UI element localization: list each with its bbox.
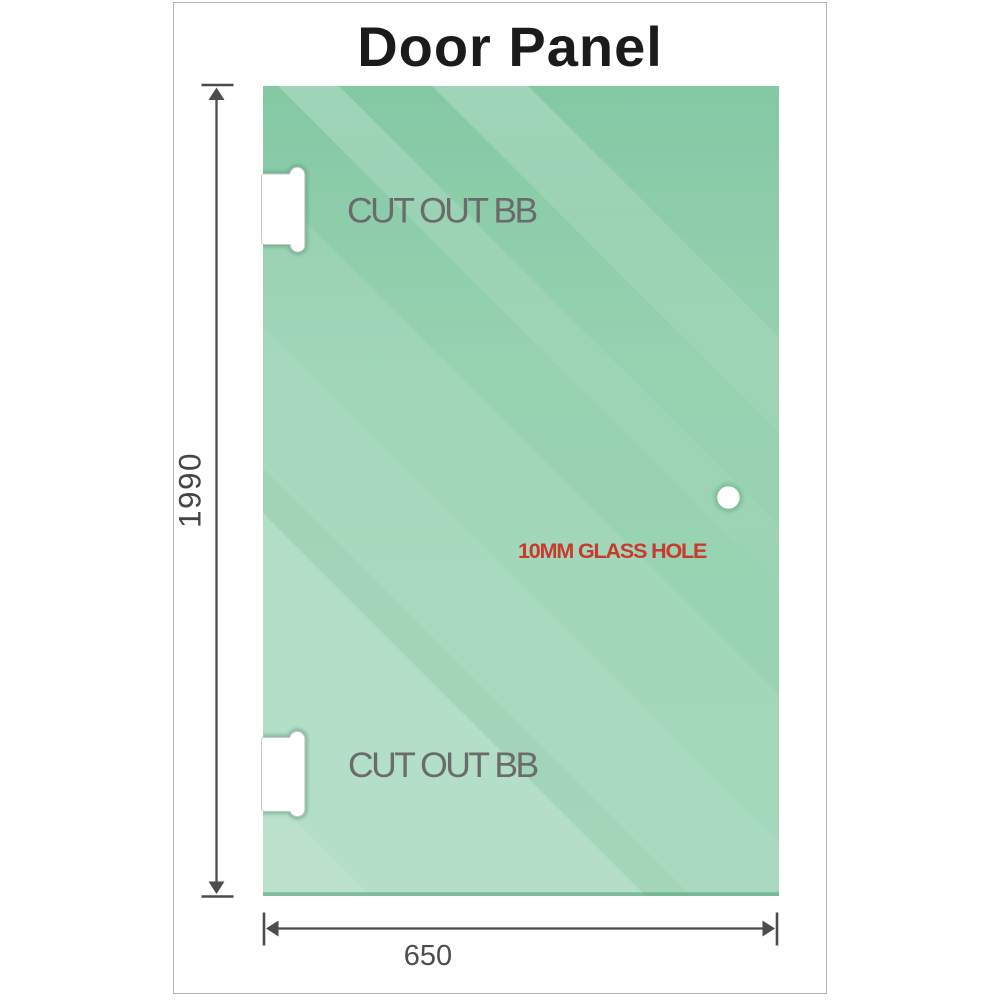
svg-text:CUT OUT BB: CUT OUT BB	[348, 745, 538, 785]
svg-text:CUT OUT BB: CUT OUT BB	[347, 191, 537, 231]
svg-text:650: 650	[404, 940, 452, 972]
svg-text:1990: 1990	[172, 452, 208, 528]
svg-text:10MM GLASS HOLE: 10MM GLASS HOLE	[518, 539, 707, 563]
svg-text:Door Panel: Door Panel	[357, 15, 663, 78]
